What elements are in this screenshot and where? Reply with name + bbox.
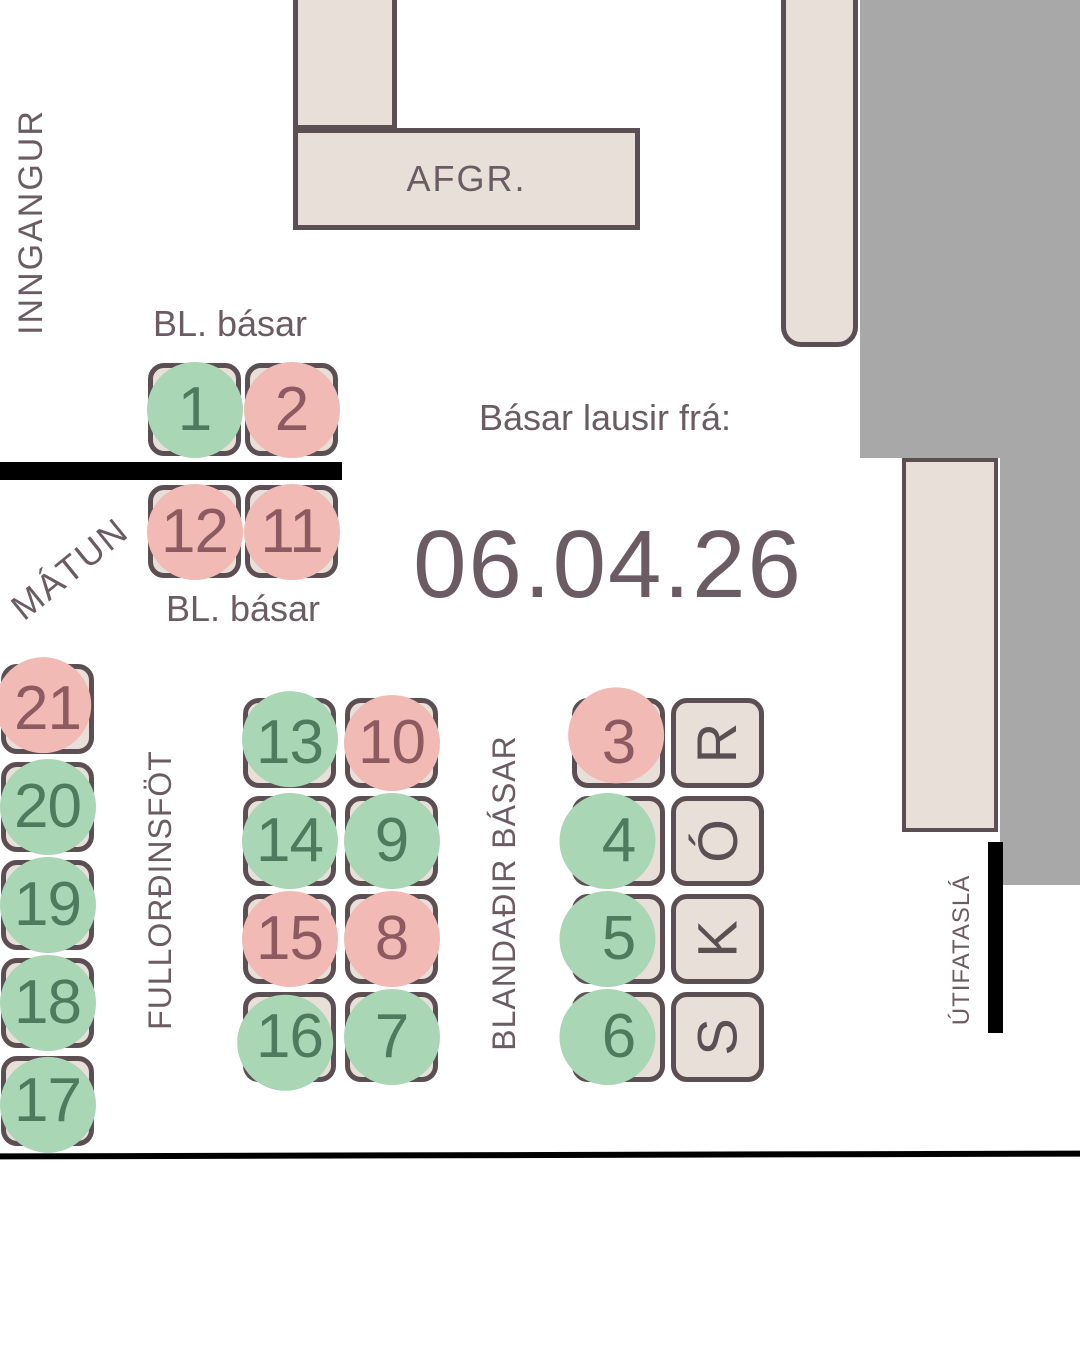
available-from-date: 06.04.26 [358, 510, 858, 620]
bl-booths-top-row: 12 [148, 363, 338, 456]
adult-clothing-label: FULLORÐINSFÖT [142, 710, 182, 1070]
booth-number: 2 [275, 379, 308, 441]
booth-2: 2 [245, 363, 338, 456]
counter-desk: AFGR. [293, 128, 640, 230]
booth-4: 4 [572, 796, 665, 886]
booth-number: 8 [375, 908, 408, 970]
shoes-letter: R [689, 723, 745, 763]
booth-1: 1 [148, 363, 241, 456]
booth-number: 10 [358, 712, 425, 774]
booth-10: 10 [345, 698, 438, 788]
booth-number: 6 [602, 1006, 635, 1068]
booth-number: 21 [14, 678, 81, 740]
booth-number: 19 [14, 874, 81, 936]
bl-booths-bottom-row: 1211 [148, 485, 338, 578]
clothing-rail-top [781, 0, 858, 347]
booth-number: 16 [256, 1006, 323, 1068]
counter-column [293, 0, 397, 130]
booth-number: 12 [161, 501, 228, 563]
shoes-letter-column: RÓKS [671, 698, 764, 1082]
booth-number: 4 [602, 810, 635, 872]
matun-divider-bar [0, 462, 342, 480]
booth-8: 8 [345, 894, 438, 984]
booth-6: 6 [572, 992, 665, 1082]
floor-line [0, 1151, 1080, 1160]
outerwear-label: ÚTIFATASLÁ [948, 840, 982, 1060]
booth-number: 15 [256, 908, 323, 970]
outerwear-rack-bar [988, 842, 1003, 1033]
wall-block-top-right [860, 0, 1080, 458]
booth-20: 20 [1, 762, 94, 852]
booth-7: 7 [345, 992, 438, 1082]
booth-3: 3 [572, 698, 665, 788]
booth-18: 18 [1, 958, 94, 1048]
booth-number: 14 [256, 810, 323, 872]
booth-13: 13 [243, 698, 336, 788]
booth-number: 9 [375, 810, 408, 872]
booth-12: 12 [148, 485, 241, 578]
booth-11: 11 [245, 485, 338, 578]
booth-number: 17 [14, 1070, 81, 1132]
outerwear-rack [902, 458, 998, 832]
shoes-letter-cell: R [671, 698, 764, 788]
bl-basar-top-label: BL. básar [120, 303, 340, 345]
booth-19: 19 [1, 860, 94, 950]
bl-basar-bottom-label: BL. básar [133, 588, 353, 630]
booth-17: 17 [1, 1056, 94, 1146]
shoes-letter-cell: S [671, 992, 764, 1082]
booth-number: 13 [256, 712, 323, 774]
booth-14: 14 [243, 796, 336, 886]
shoes-letter: S [689, 1018, 745, 1055]
booth-21: 21 [1, 664, 94, 754]
shoes-letter: K [689, 920, 745, 957]
booth-number: 7 [375, 1006, 408, 1068]
booth-16: 16 [243, 992, 336, 1082]
shoes-letter: Ó [690, 819, 746, 863]
booth-number: 3 [602, 712, 635, 774]
mixed-booths-label: BLANDAÐIR BÁSAR [486, 693, 526, 1093]
shoes-booth-column: 3456 [572, 698, 665, 1082]
adult-clothing-booth-column: 2120191817 [1, 664, 94, 1146]
booth-number: 5 [602, 908, 635, 970]
booth-number: 20 [14, 776, 81, 838]
counter-label: AFGR. [298, 133, 635, 225]
shoes-letter-cell: Ó [671, 796, 764, 886]
booth-9: 9 [345, 796, 438, 886]
mixed-booths-grid: 1310149158167 [243, 698, 438, 1082]
booth-15: 15 [243, 894, 336, 984]
booth-number: 11 [260, 501, 322, 563]
entrance-label: INNGANGUR [12, 92, 52, 352]
shoes-letter-cell: K [671, 894, 764, 984]
available-from-label: Básar lausir frá: [405, 397, 805, 439]
wall-block-right [1000, 458, 1080, 885]
booth-5: 5 [572, 894, 665, 984]
booth-number: 18 [14, 972, 81, 1034]
booth-number: 1 [178, 379, 211, 441]
